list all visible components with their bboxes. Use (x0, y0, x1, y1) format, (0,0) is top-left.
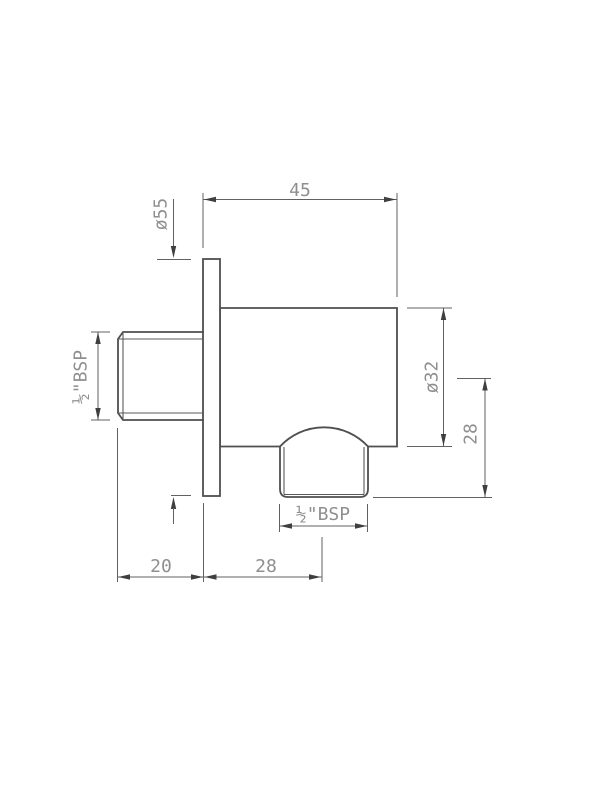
dim-overall-depth-label: 45 (289, 180, 311, 201)
extension-lines (203, 193, 397, 297)
body-outline (220, 308, 397, 447)
arrowhead-left (280, 523, 292, 528)
inlet-connector-thread-lines (118, 332, 203, 420)
arrowhead-up (482, 379, 487, 391)
arrowhead-up (95, 332, 100, 344)
part-outline (118, 259, 397, 497)
arrowhead-right (355, 523, 367, 528)
arrowhead-down (171, 246, 176, 258)
arrowhead-28-left (205, 574, 217, 579)
outlet-connector-thread-lines (284, 447, 364, 495)
dim-outlet-thread-label: ½"BSP (296, 504, 350, 525)
arrowhead-20-left (118, 574, 130, 579)
arrowhead-down (95, 408, 100, 420)
arrowhead-20-right (191, 574, 203, 579)
arrowhead-down (441, 434, 446, 446)
dim-flange-diameter-label: ø55 (151, 198, 172, 231)
arrowhead-right (384, 197, 396, 202)
dim-overall-depth: 45 (203, 180, 397, 297)
dim-outlet-thread: ½"BSP (280, 504, 368, 532)
dim-body-diameter-label: ø32 (422, 361, 443, 394)
wall-flange (203, 259, 220, 496)
outlet-connector-outline (280, 447, 368, 498)
arrowhead-down (482, 485, 487, 497)
arrowhead-left (204, 197, 216, 202)
dim-body-diameter: ø32 (407, 308, 452, 447)
dim-inlet-thread-label: ½"BSP (71, 350, 92, 404)
dim-inlet-thread: ½"BSP (71, 332, 111, 420)
dim-flange-diameter: ø55 (151, 198, 192, 524)
inlet-connector (118, 332, 203, 420)
arrowhead-up (171, 497, 176, 509)
dim-outlet-drop-label: 28 (461, 423, 482, 445)
dim-inlet-length-label: 20 (150, 556, 172, 577)
dim-outlet-center-offset-label: 28 (255, 556, 277, 577)
arrowhead-up (441, 308, 446, 320)
arrowhead-28-right (309, 574, 321, 579)
technical-drawing-canvas: 45 ø55 ½"BSP ø32 28 (0, 0, 600, 800)
inlet-connector-outline (118, 332, 203, 420)
